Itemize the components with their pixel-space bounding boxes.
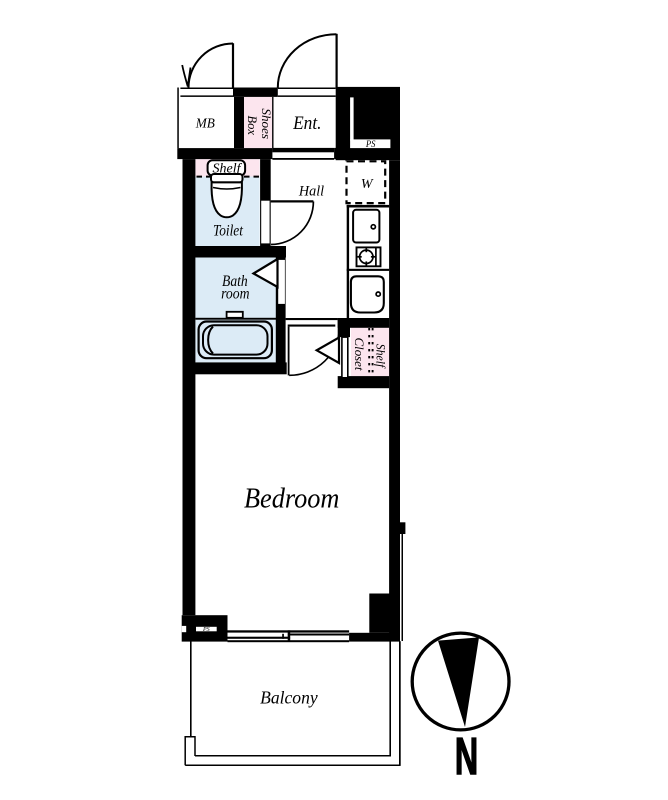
svg-text:Hall: Hall <box>298 183 324 199</box>
svg-text:Box: Box <box>245 116 259 136</box>
svg-text:Shelf: Shelf <box>374 344 389 370</box>
svg-text:Balcony: Balcony <box>260 687 318 707</box>
svg-text:N: N <box>455 728 478 786</box>
svg-text:room: room <box>221 286 249 303</box>
svg-text:Shoes: Shoes <box>259 108 273 139</box>
svg-text:MB: MB <box>195 116 215 131</box>
svg-text:PS: PS <box>365 140 376 150</box>
svg-text:W: W <box>361 177 374 192</box>
svg-text:Ent.: Ent. <box>292 113 321 134</box>
svg-text:Closet: Closet <box>352 338 367 371</box>
svg-text:PS: PS <box>202 627 210 633</box>
svg-text:Bedroom: Bedroom <box>244 483 340 515</box>
svg-text:Toilet: Toilet <box>213 222 244 239</box>
